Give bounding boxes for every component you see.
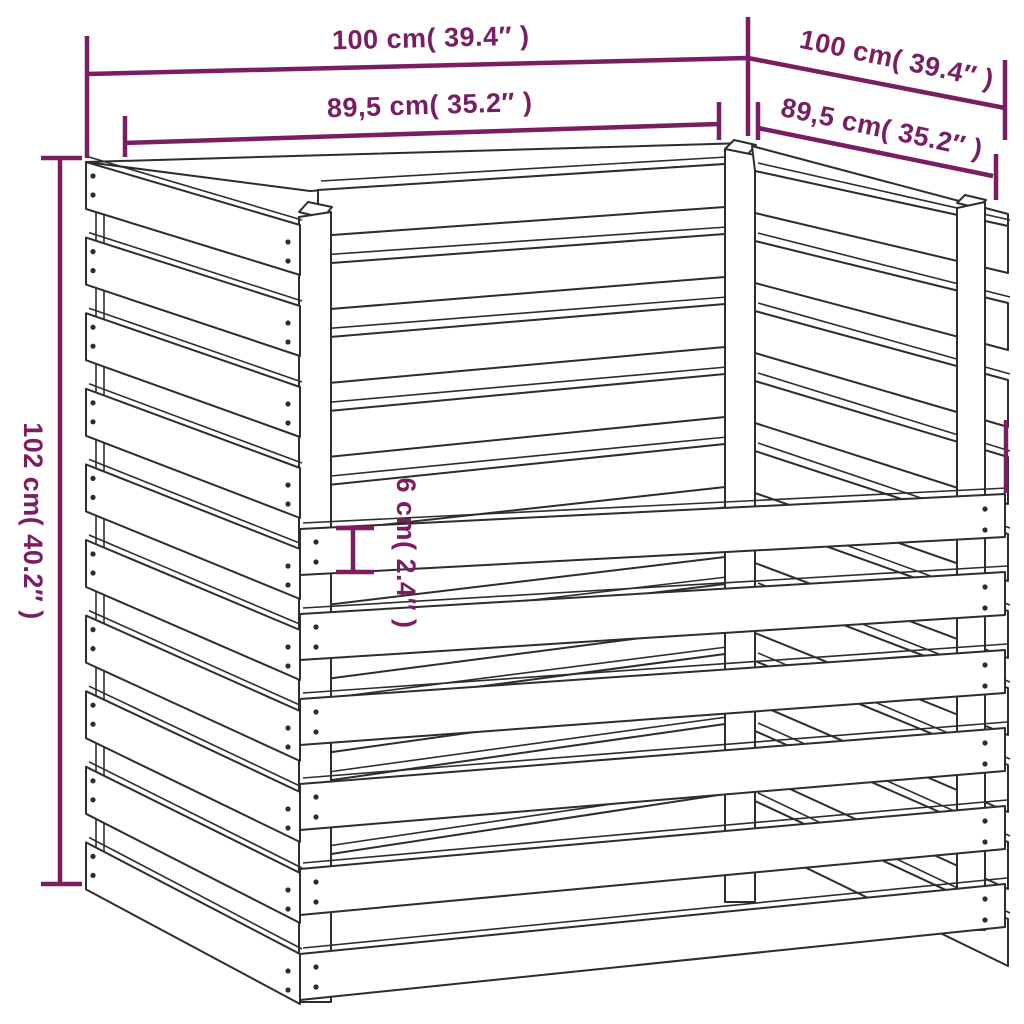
screw-dot [90,778,95,783]
screw-dot [285,501,290,506]
screw-dot [982,683,987,688]
screw-dot [982,740,987,745]
screw-dot [90,646,95,651]
screw-dot [313,899,318,904]
screw-dot [982,896,987,901]
screw-dot [313,539,318,544]
label-inner-width: 89,5 cm( 35.2″ ) [327,87,533,123]
screw-dot [313,879,318,884]
screw-dot [90,400,95,405]
screw-dot [90,476,95,481]
screw-dot [285,887,290,892]
screw-dot [313,559,318,564]
screw-dot [313,709,318,714]
composter-line-drawing: 100 cm( 39.4″ ) 100 cm( 39.4″ ) 89,5 cm(… [0,0,1024,1024]
screw-dot [90,495,95,500]
composter-wireframe [86,140,1010,1004]
label-top-depth: 100 cm( 39.4″ ) [797,24,996,94]
screw-dot [285,806,290,811]
screw-dot [285,239,290,244]
dimension-line [125,124,719,143]
screw-dot [313,984,318,989]
screw-dot [90,627,95,632]
screw-dot [90,551,95,556]
label-height: 102 cm( 40.2″ ) [18,422,48,620]
screw-dot [90,570,95,575]
screw-dot [982,662,987,667]
screw-dot [982,761,987,766]
screw-dot [285,258,290,263]
screw-dot [313,729,318,734]
screw-dot [285,339,290,344]
screw-dot [90,797,95,802]
dimension-line [87,58,748,74]
screw-dot [90,873,95,878]
screw-dot [285,482,290,487]
screw-dot [285,968,290,973]
screw-dot [285,401,290,406]
screw-dot [285,744,290,749]
screw-dot [90,722,95,727]
screw-dot [285,320,290,325]
screw-dot [982,527,987,532]
screw-dot [982,917,987,922]
screw-dot [90,703,95,708]
product-dimension-diagram: 100 cm( 39.4″ ) 100 cm( 39.4″ ) 89,5 cm(… [0,0,1024,1024]
label-top-width: 100 cm( 39.4″ ) [332,21,530,56]
screw-dot [285,563,290,568]
screw-dot [90,419,95,424]
screw-dot [285,644,290,649]
screw-dot [90,344,95,349]
screw-dot [285,420,290,425]
screw-dot [90,325,95,330]
slat [318,374,725,458]
label-board-width: 6 cm( 2.4″ ) [391,478,421,629]
screw-dot [313,644,318,649]
screw-dot [982,506,987,511]
screw-dot [285,582,290,587]
screw-dot [285,825,290,830]
screw-dot [90,173,95,178]
screw-dot [90,249,95,254]
screw-dot [982,584,987,589]
screw-dot [313,964,318,969]
screw-dot [982,839,987,844]
screw-dot [285,663,290,668]
slat [318,234,725,310]
screw-dot [313,624,318,629]
screw-dot [90,854,95,859]
screw-dot [982,818,987,823]
screw-dot [90,268,95,273]
screw-dot [313,814,318,819]
screw-dot [982,605,987,610]
screw-dot [285,725,290,730]
screw-dot [285,987,290,992]
screw-dot [313,794,318,799]
screw-dot [90,192,95,197]
page: { "canvas": { "background": "#ffffff", "… [0,0,1024,1024]
screw-dot [285,906,290,911]
